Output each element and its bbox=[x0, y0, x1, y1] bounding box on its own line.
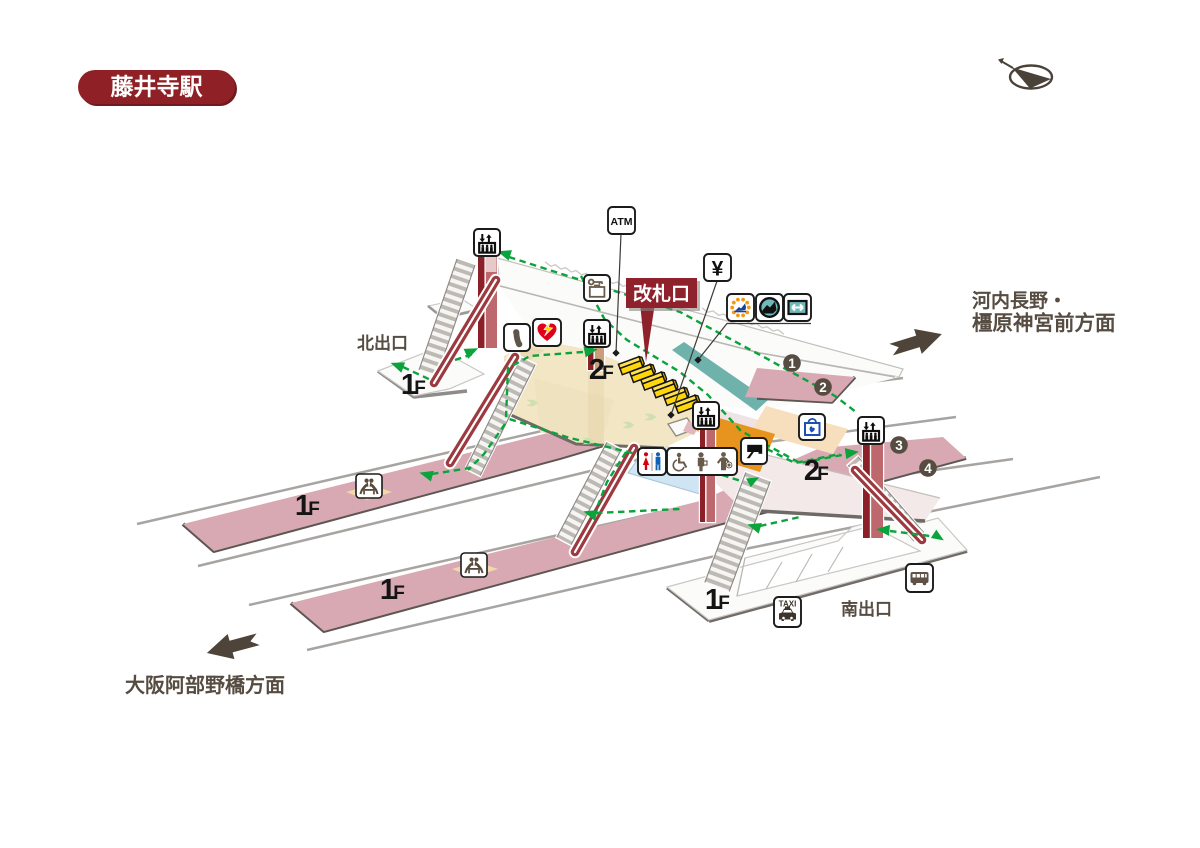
svg-text:F: F bbox=[602, 363, 614, 384]
svg-text:北出口: 北出口 bbox=[357, 333, 408, 353]
svg-text:南出口: 南出口 bbox=[841, 599, 892, 619]
svg-text:橿原神宮前方面: 橿原神宮前方面 bbox=[972, 311, 1116, 335]
svg-text:F: F bbox=[414, 378, 426, 399]
svg-text:改札口: 改札口 bbox=[633, 282, 690, 305]
svg-text:1: 1 bbox=[788, 356, 796, 371]
svg-text:F: F bbox=[393, 583, 405, 604]
svg-text:F: F bbox=[817, 464, 829, 485]
svg-text:河内長野・: 河内長野・ bbox=[972, 289, 1067, 312]
svg-text:大阪阿部野橋方面: 大阪阿部野橋方面 bbox=[125, 673, 285, 697]
svg-text:¥: ¥ bbox=[712, 258, 724, 281]
svg-text:F: F bbox=[308, 499, 320, 520]
svg-text:3: 3 bbox=[895, 438, 903, 453]
svg-text:藤井寺駅: 藤井寺駅 bbox=[111, 74, 203, 100]
svg-text:4: 4 bbox=[924, 461, 932, 476]
svg-text:ATM: ATM bbox=[611, 216, 633, 228]
svg-text:2: 2 bbox=[819, 380, 827, 395]
svg-text:F: F bbox=[718, 593, 730, 614]
